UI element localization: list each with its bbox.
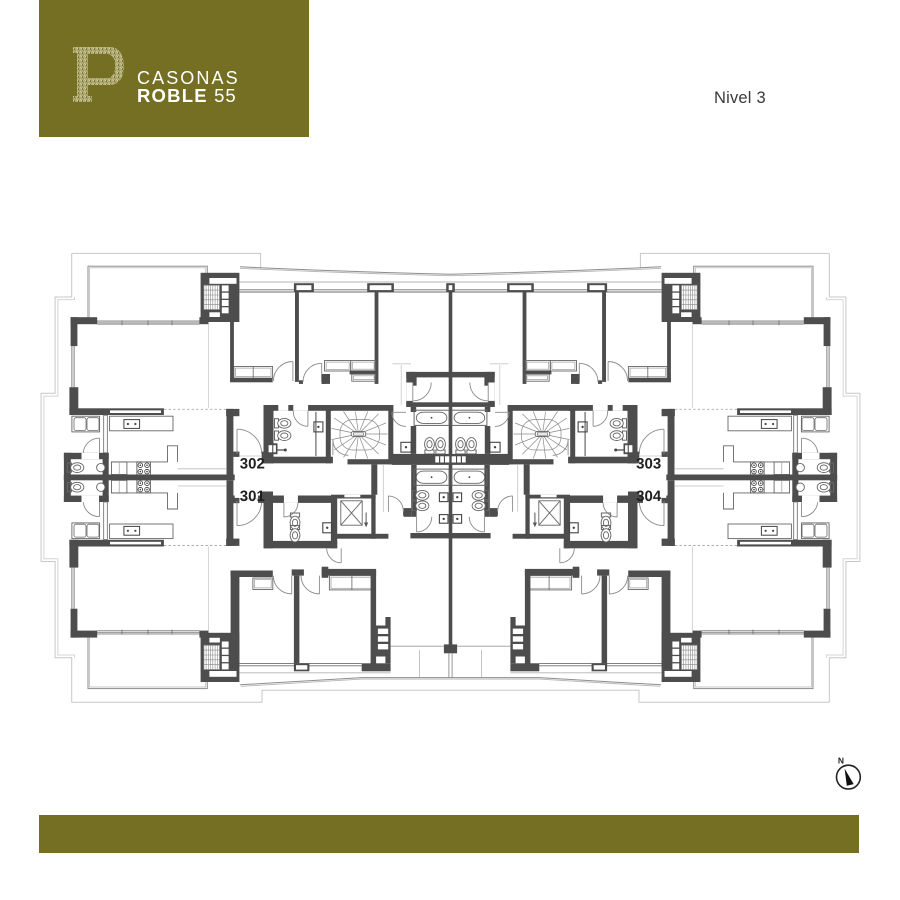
svg-text:303: 303 bbox=[636, 455, 661, 472]
svg-text:302: 302 bbox=[240, 455, 265, 472]
svg-text:304: 304 bbox=[636, 488, 662, 505]
svg-text:N: N bbox=[838, 755, 844, 765]
svg-text:301: 301 bbox=[240, 488, 265, 505]
